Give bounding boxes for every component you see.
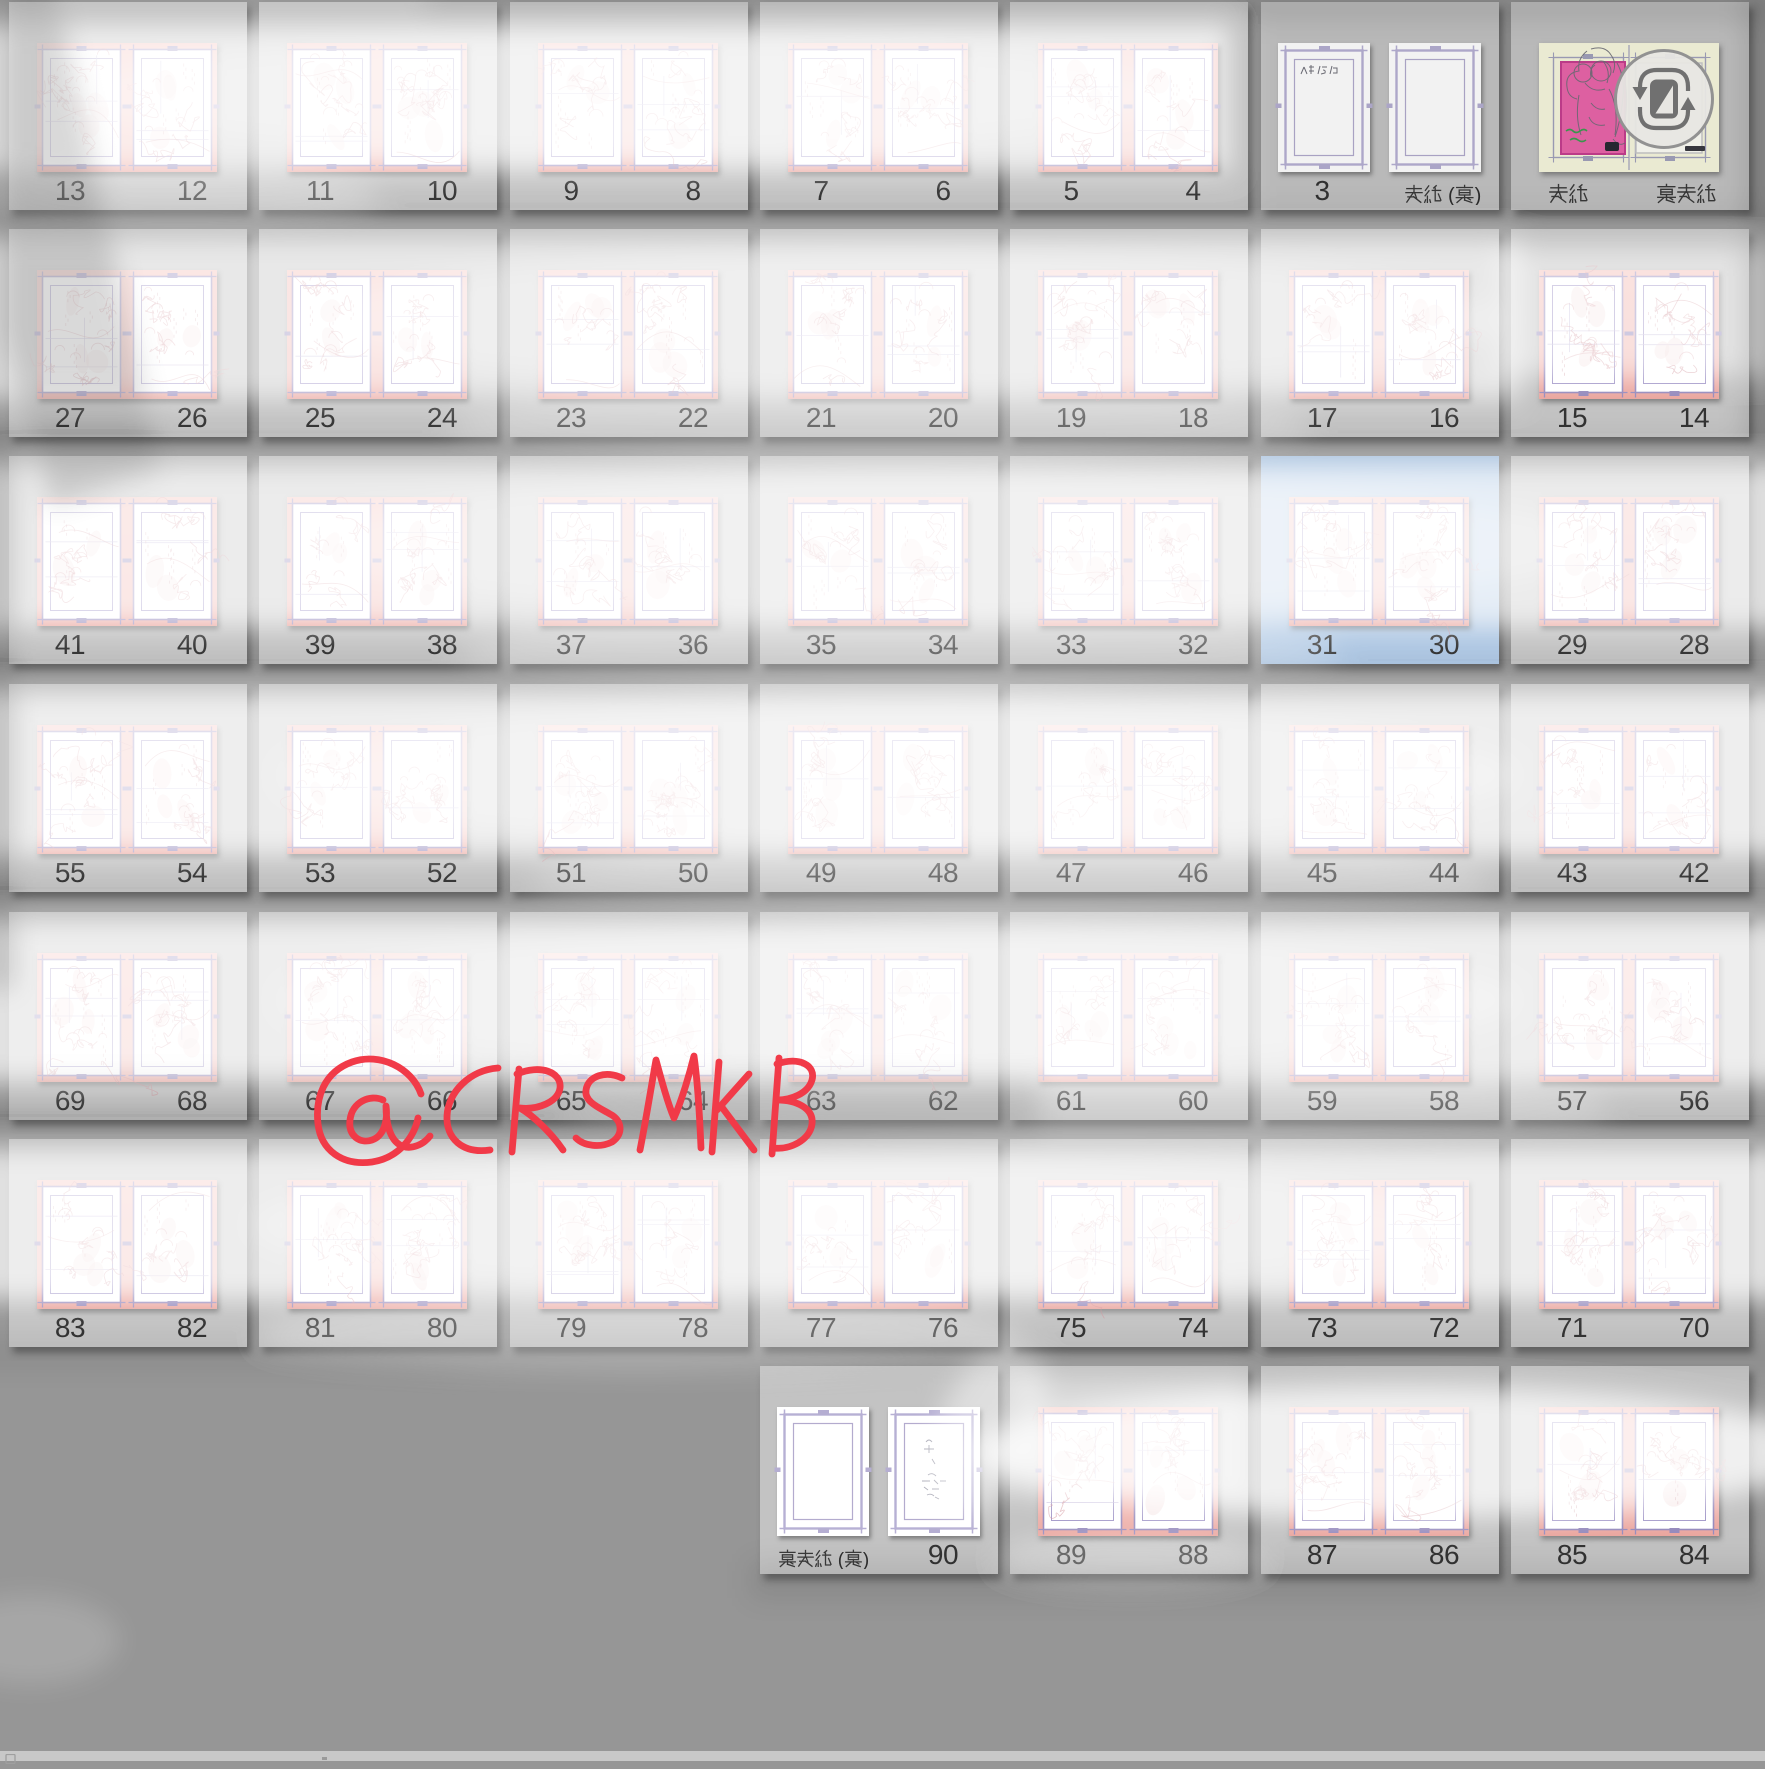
- svg-text:): ): [1475, 185, 1482, 205]
- svg-text:(: (: [1448, 185, 1455, 205]
- svg-text:): ): [862, 1550, 868, 1569]
- svg-text:(: (: [837, 1550, 844, 1569]
